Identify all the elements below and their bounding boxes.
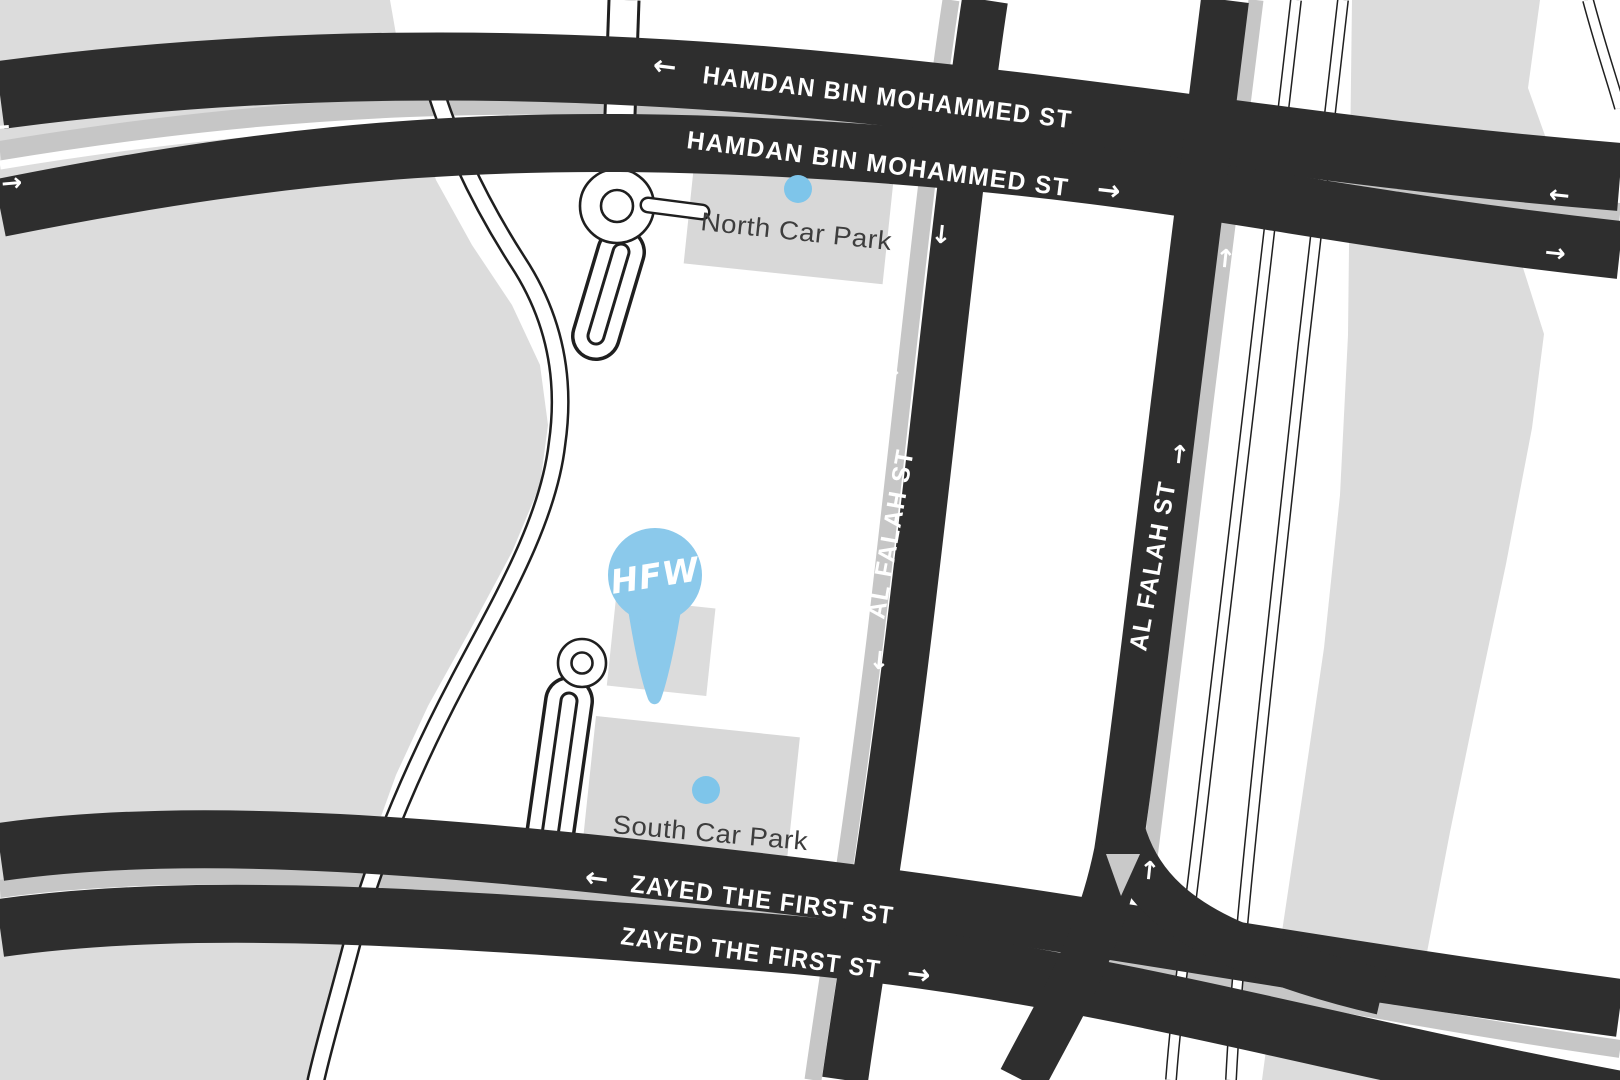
hamdan-lower-arrow: →	[1095, 172, 1122, 208]
hamdan-lower-edge-arrow: →	[0, 167, 23, 198]
al-falah-west-down-arrow-3: ↓	[867, 645, 891, 676]
al-falah-east-up-arrow-1: ↑	[1213, 243, 1237, 274]
hamdan-upper-right-edge-arrow: ←	[1547, 179, 1571, 210]
hamdan-upper-arrow: ←	[651, 48, 678, 84]
north-loop-road	[596, 252, 621, 336]
south-car-park-dot	[692, 776, 720, 804]
minor-road-corner-stub	[1588, 0, 1620, 108]
al-falah-east-up-arrow-2: ↑	[1167, 439, 1191, 470]
zayed-upper-arrow: ←	[583, 860, 610, 896]
al-falah-west-down-arrow-1: ↓	[929, 219, 953, 250]
hamdan-lower-right-edge-arrow: →	[1543, 237, 1567, 268]
north-car-park-dot	[784, 175, 812, 203]
south-cul-de-sac	[558, 639, 606, 687]
al-falah-west-down-arrow-4: ↓	[833, 721, 857, 752]
zayed-lower-arrow: →	[905, 956, 932, 992]
roundabout-east-spur	[648, 205, 702, 212]
al-falah-west-down-arrow-2: ↓	[881, 353, 905, 384]
street-map: ← HAMDAN BIN MOHAMMED ST HAMDAN BIN MOHA…	[0, 0, 1620, 1080]
al-falah-east-up-arrow-3: ↑	[1137, 855, 1161, 886]
